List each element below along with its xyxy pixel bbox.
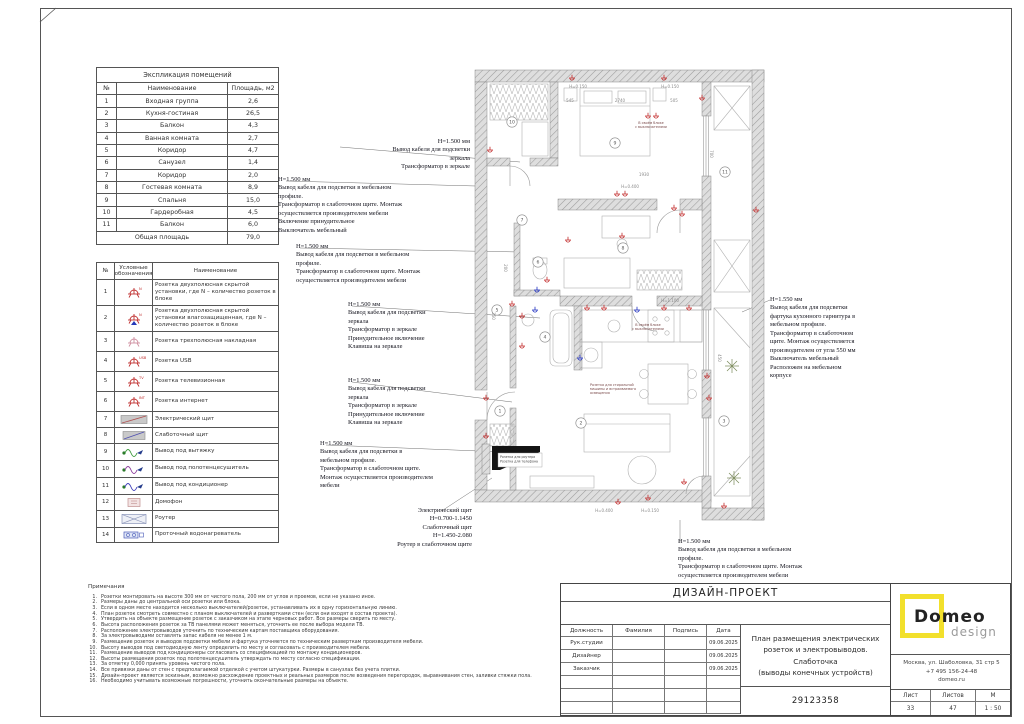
sheet-col-scale: М — [976, 690, 1010, 702]
sheet-info-table: Лист Листов М 33 47 1 : 50 — [891, 690, 1012, 715]
note-item: 16.Необходимо учитывать возможные погреш… — [88, 679, 562, 685]
dimension-label: H=0.150 — [569, 84, 587, 89]
table-row: 1Входная группа2,6 — [97, 95, 278, 107]
legend-row: 11 Вывод под кондиционер — [97, 478, 278, 495]
svg-text:TV: TV — [138, 376, 144, 380]
svg-text:6: 6 — [537, 260, 540, 266]
room-number: 2 — [576, 418, 586, 428]
svg-text:10: 10 — [509, 120, 515, 126]
table-row: 4Ванная комната2,7 — [97, 133, 278, 145]
outlet-symbol — [721, 503, 727, 508]
outlet-symbol — [622, 191, 628, 196]
annotation-block: H=1.500 мм Вывод кабеля для подсветки в … — [278, 176, 474, 235]
legend-row: 14Проточный водонагреватель — [97, 528, 278, 542]
room-number: 4 — [540, 332, 550, 342]
dimension-label: 2740 — [615, 98, 626, 103]
legend-row: 5 TV Розетка телевизионная — [97, 372, 278, 392]
legend-row: 7Электрический щит — [97, 412, 278, 428]
room-number: 8 — [618, 243, 628, 253]
sheet-number: 33 — [891, 702, 931, 715]
svg-text:USB: USB — [139, 356, 146, 360]
sig-sign — [665, 650, 707, 663]
plan-caption: В своём блокес выключателями — [635, 121, 667, 129]
svg-text:N: N — [139, 313, 142, 317]
notes: Примечания 1.Розетки монтировать на высо… — [88, 584, 562, 685]
intercom-icon — [126, 497, 142, 508]
explication-table: Экспликация помещений № Наименование Пло… — [96, 67, 279, 245]
legend-body: 1 N Розетка двухполюсная скрытой установ… — [97, 280, 278, 542]
document-number: 29123358 — [741, 686, 890, 714]
sig-col-sign: Подпись — [665, 625, 707, 637]
table-row: 7Коридор2,0 — [97, 170, 278, 182]
table-row: 2Кухня-гостиная26,5 — [97, 108, 278, 120]
sig-sign — [665, 637, 707, 650]
plan-caption: В своём блокес выключателями — [632, 323, 664, 331]
room-number: 1 — [495, 406, 505, 416]
annotation-block: H=1.500 мм Вывод кабеля для подсветки зе… — [302, 138, 470, 172]
outlet-symbol — [544, 277, 550, 282]
title-block-spacer — [561, 602, 890, 625]
legend-row: 1 N Розетка двухполюсная скрытой установ… — [97, 280, 278, 306]
room-number: 10 — [507, 117, 517, 127]
room-number: 9 — [610, 138, 620, 148]
table-row: 5Коридор4,7 — [97, 145, 278, 157]
plan-caption: Розетка для стиральноймашины и встраивае… — [590, 383, 636, 395]
legend-row: 6 INT Розетка интернет — [97, 392, 278, 412]
sig-fio — [613, 663, 665, 676]
outlet-symbol — [653, 113, 659, 118]
sig-date: 09.06.2025 — [707, 650, 740, 663]
legend-row: 9 Вывод под вытяжку — [97, 444, 278, 461]
outlet-symbol — [483, 395, 489, 400]
drawing-sheet: Экспликация помещений № Наименование Пло… — [0, 0, 1024, 724]
sig-fio — [613, 637, 665, 650]
title-block-right: Domeo design Москва, ул. Шаболовка, 31 с… — [891, 584, 1012, 715]
total-value: 79,0 — [228, 232, 278, 244]
dimension-label: H=0.400 — [595, 508, 613, 513]
sheet-scale: 1 : 50 — [976, 702, 1010, 715]
outlet-symbol — [509, 301, 515, 306]
router-shelf-label: Розетка для роутера — [500, 455, 535, 459]
dimension-label: H=0.150 — [641, 508, 659, 513]
router-shelf-label: Розетка для телефона — [500, 460, 538, 464]
col-name: Наименование — [153, 263, 278, 280]
explication-total: Общая площадь 79,0 — [97, 232, 278, 244]
dimension-label: 250 — [491, 312, 496, 320]
sig-role: Дизайнер — [561, 650, 613, 663]
socket-icon: USB — [122, 354, 146, 369]
dimension-label: 545 — [566, 98, 574, 103]
svg-text:3: 3 — [723, 419, 726, 425]
annotation-block: H=1.500 мм Вывод кабеля для подсветки в … — [678, 538, 884, 580]
outlet-symbol — [614, 191, 620, 196]
sig-col-fio: Фамилия — [613, 625, 665, 637]
floor-plan: 1234567891011 5452740505H=0.150H=0.15019… — [452, 58, 772, 530]
explication-title: Экспликация помещений — [97, 68, 278, 83]
dimension-label: H=0.150 — [661, 84, 679, 89]
sig-col-role: Должность — [561, 625, 613, 637]
legend-row: 13Роутер — [97, 511, 278, 528]
cable-out-icon — [121, 463, 147, 475]
title-block: ДИЗАЙН-ПРОЕКТ Должность Фамилия Подпись … — [560, 583, 1011, 716]
col-num: № — [97, 263, 115, 280]
dimension-label: H=1.100 — [661, 298, 679, 303]
outlet-symbol — [671, 205, 677, 210]
notes-title: Примечания — [88, 584, 562, 591]
socket-icon: N — [122, 311, 146, 326]
sig-col-date: Дата — [707, 625, 740, 637]
room-number: 3 — [719, 416, 729, 426]
col-area: Площадь, м2 — [228, 83, 278, 95]
logo: Domeo design — [891, 584, 1012, 655]
sig-role: Заказчик — [561, 663, 613, 676]
annotation-block: H=1.500 мм Вывод кабеля для подсветки в … — [320, 440, 472, 491]
annotation-block: H=1.500 мм Вывод кабеля для подсветки зе… — [348, 301, 470, 352]
table-row: 10Гардеробная4,5 — [97, 207, 278, 219]
electric-panel-icon — [120, 414, 148, 425]
project-label: ДИЗАЙН-ПРОЕКТ — [561, 584, 890, 602]
legend-row: 4 USB Розетка USB — [97, 352, 278, 372]
svg-text:INT: INT — [139, 396, 146, 400]
legend-row: 2 N Розетка двухполюсная скрытой установ… — [97, 306, 278, 332]
socket-icon: N — [122, 285, 146, 300]
notes-body: 1.Розетки монтировать на высоте 300 мм о… — [88, 595, 562, 686]
legend-table: № Условные обозначения Наименование 1 N … — [96, 262, 279, 543]
annotation-block: H=1.550 мм Вывод кабеля для подсветки фа… — [770, 296, 876, 381]
explication-body: 1Входная группа2,62Кухня-гостиная26,53Ба… — [97, 95, 278, 231]
signature-table: Должность Фамилия Подпись Дата Рук.студи… — [561, 625, 741, 714]
svg-text:8: 8 — [622, 246, 625, 252]
outlet-symbol — [487, 147, 493, 152]
col-name: Наименование — [117, 83, 228, 95]
annotation-block: Электрический щит H=0.700-1.1450 Слабото… — [342, 507, 472, 549]
dimension-label: H=0.400 — [621, 184, 639, 189]
title-block-left: ДИЗАЙН-ПРОЕКТ Должность Фамилия Подпись … — [561, 584, 891, 715]
annotation-block: H=1.500 мм Вывод кабеля для подсветки зе… — [348, 377, 470, 428]
outlet-symbol — [532, 307, 538, 312]
room-number: 7 — [517, 215, 527, 225]
cable-out-icon — [121, 480, 147, 492]
svg-text:9: 9 — [614, 141, 617, 147]
col-num: № — [97, 83, 117, 95]
outlet-symbol — [634, 307, 640, 312]
sheet-col-list: Лист — [891, 690, 931, 702]
water-heater-icon — [123, 530, 145, 540]
logo-subtitle: design — [951, 625, 997, 639]
table-row: 8Гостевая комната8,9 — [97, 182, 278, 194]
outlet-symbol — [565, 237, 571, 242]
router-icon — [121, 513, 147, 525]
socket-icon — [122, 334, 146, 349]
sheet-title: План размещения электрических розеток и … — [741, 625, 890, 686]
sig-fio — [613, 650, 665, 663]
logo-text: Domeo — [914, 607, 986, 627]
socket-icon: INT — [122, 394, 146, 409]
annotation-block: H=1.500 мм Вывод кабеля для подсветки в … — [296, 243, 480, 285]
dimension-label: 700 — [709, 150, 714, 158]
company-site: domeo.ru — [938, 676, 965, 684]
table-row: 6Санузел1,4 — [97, 157, 278, 169]
outlet-symbol — [519, 343, 525, 348]
table-row: 3Балкон4,3 — [97, 120, 278, 132]
low-current-panel-icon — [122, 430, 146, 441]
svg-text:11: 11 — [722, 170, 728, 176]
total-label: Общая площадь — [97, 232, 228, 244]
legend-row: 8Слаботочный щит — [97, 428, 278, 444]
company-phone: +7 495 156-24-48 — [926, 668, 977, 676]
legend-header: № Условные обозначения Наименование — [97, 263, 278, 280]
sig-role: Рук.студии — [561, 637, 613, 650]
svg-text:1: 1 — [499, 409, 502, 415]
dimension-label: 450 — [717, 354, 722, 362]
room-number: 6 — [533, 257, 543, 267]
company-contacts: Москва, ул. Шаболовка, 31 стр 5 +7 495 1… — [891, 655, 1012, 690]
cable-out-icon — [121, 446, 147, 458]
legend-row: 3 Розетка трехполюсная накладная — [97, 332, 278, 352]
legend-row: 12Домофон — [97, 495, 278, 511]
sheet-count: 47 — [931, 702, 976, 715]
outlet-symbol — [619, 233, 625, 238]
svg-text:7: 7 — [521, 218, 524, 224]
sig-sign — [665, 663, 707, 676]
sig-date: 09.06.2025 — [707, 637, 740, 650]
socket-icon: TV — [122, 374, 146, 389]
room-numbers: 1234567891011 — [492, 117, 730, 428]
dimension-label: 505 — [670, 98, 678, 103]
sig-date: 09.06.2025 — [707, 663, 740, 676]
svg-text:N: N — [139, 287, 142, 291]
frame-corner-mark — [38, 6, 62, 30]
explication-header: № Наименование Площадь, м2 — [97, 83, 278, 95]
col-symbol: Условные обозначения — [115, 263, 153, 280]
dimension-label: 1930 — [639, 172, 650, 177]
company-address: Москва, ул. Шаболовка, 31 стр 5 — [903, 659, 999, 667]
room-number: 11 — [720, 167, 730, 177]
outlet-symbol — [681, 479, 687, 484]
sheet-col-listov: Листов — [931, 690, 976, 702]
legend-row: 10 Вывод под полотенцесушитель — [97, 461, 278, 478]
table-row: 11Балкон6,0 — [97, 219, 278, 231]
svg-text:4: 4 — [544, 335, 547, 341]
svg-text:2: 2 — [580, 421, 583, 427]
table-row: 9Спальня15,0 — [97, 194, 278, 206]
dimension-label: 200 — [503, 264, 508, 272]
